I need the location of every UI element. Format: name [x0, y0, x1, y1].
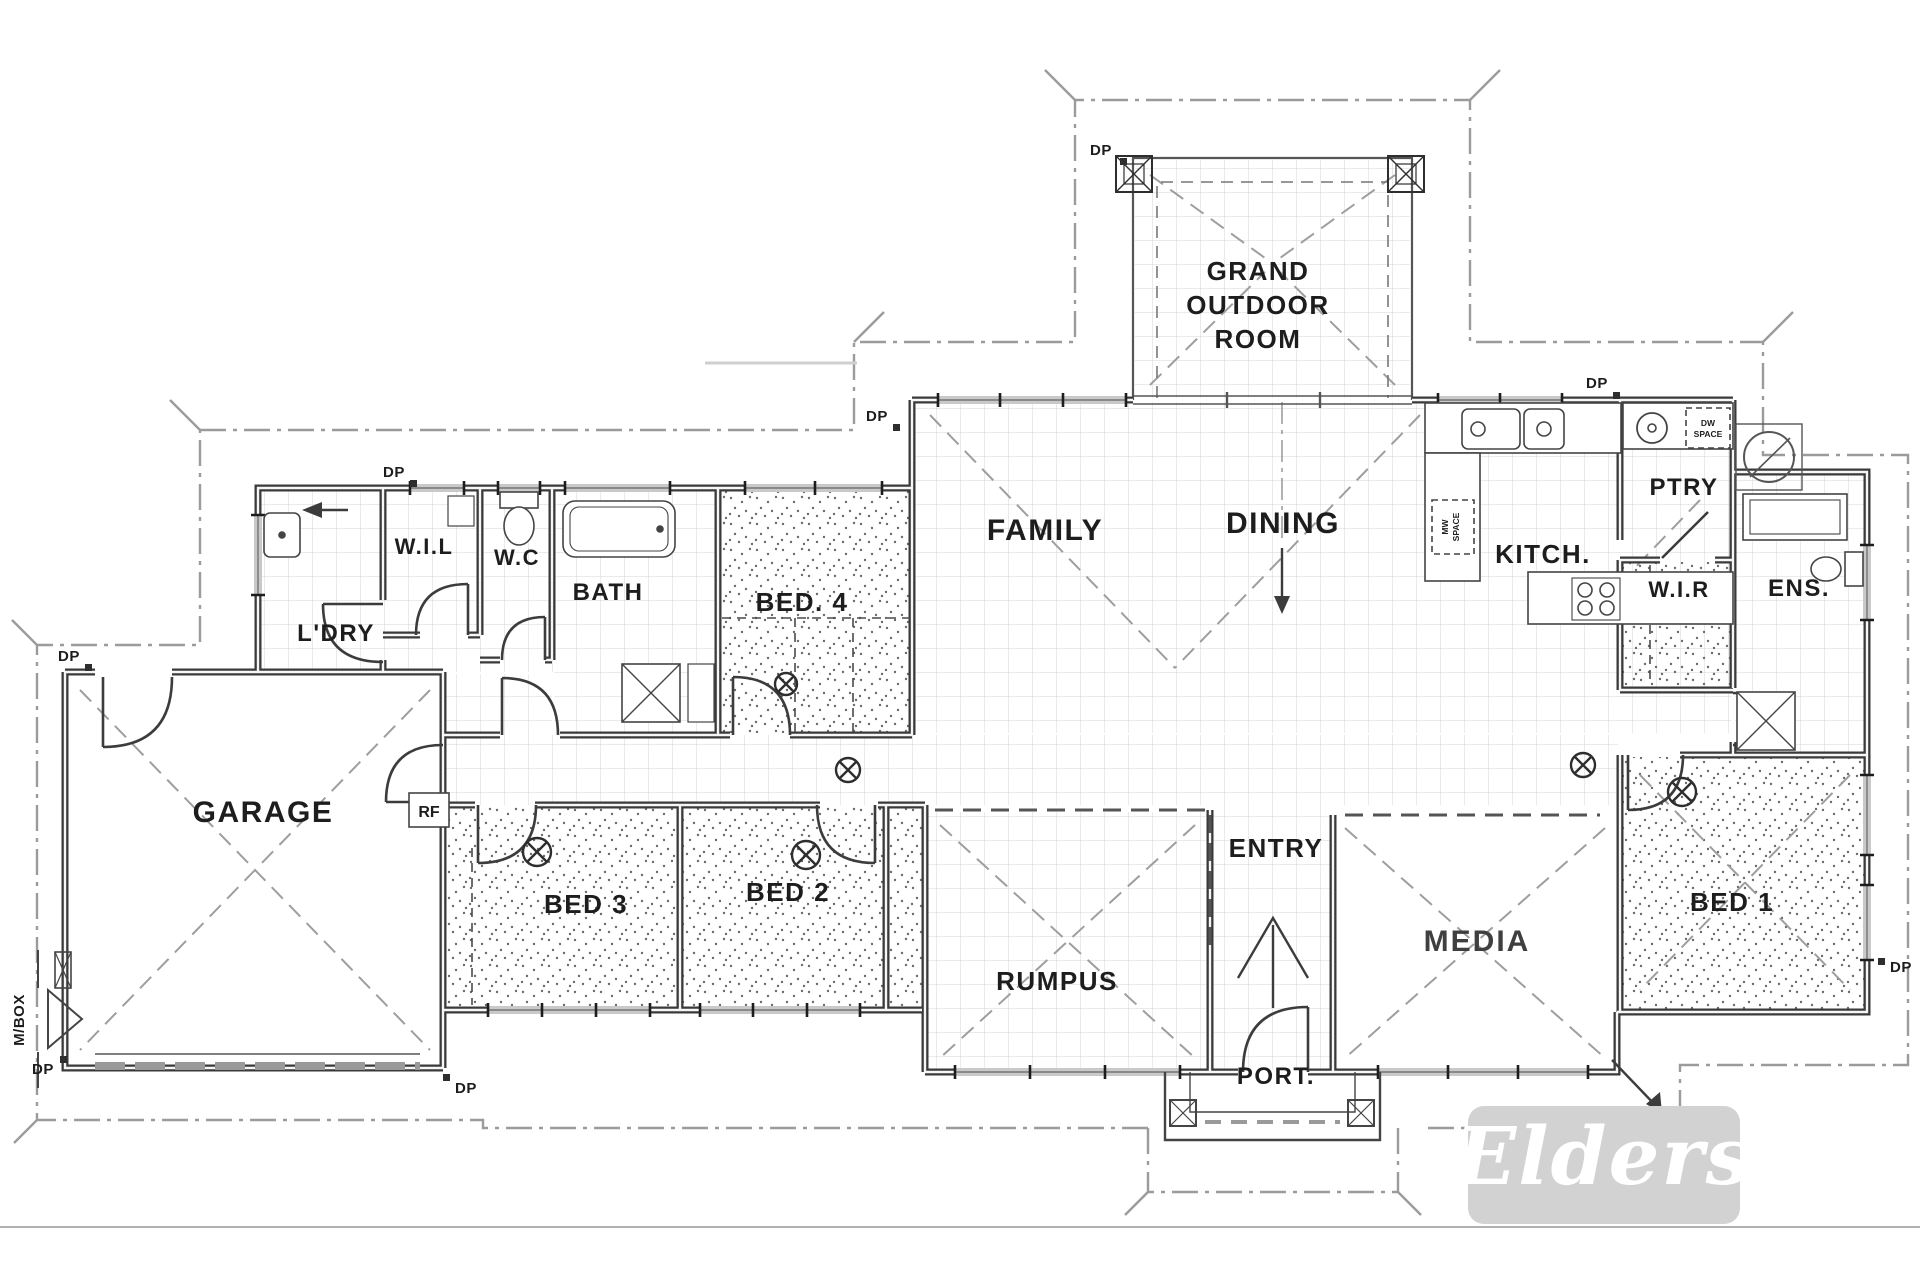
cooktop [1572, 578, 1620, 620]
label-wir: W.I.R [1648, 577, 1709, 602]
floor-plan-page: GRAND OUTDOOR ROOM FAMILY DINING KITCH. … [0, 0, 1920, 1280]
label-pantry: PTRY [1649, 474, 1718, 501]
label-bed2: BED 2 [746, 877, 830, 907]
dp-label: DP [455, 1080, 477, 1097]
label-garage: GARAGE [193, 796, 334, 829]
label-dining: DINING [1226, 507, 1340, 540]
label-kitchen: KITCH. [1495, 539, 1591, 569]
mbox-label-group: M/BOX [11, 994, 28, 1046]
label-grand-outdoor-1: GRAND [1207, 256, 1310, 286]
shower-ensuite [1737, 692, 1795, 750]
mbox-label: M/BOX [11, 994, 28, 1046]
dp-label: DP [1586, 375, 1608, 392]
floor-plan-svg: GRAND OUTDOOR ROOM FAMILY DINING KITCH. … [0, 0, 1920, 1280]
label-rf: RF [418, 804, 440, 821]
laundry-tub [264, 513, 300, 557]
portico-column [1170, 1100, 1196, 1126]
eave-corner-arrow-icon [1612, 1060, 1662, 1113]
dp-label: DP [1890, 959, 1912, 976]
shower [622, 664, 680, 722]
dp-label: DP [32, 1061, 54, 1078]
label-bed4: BED. 4 [756, 587, 849, 617]
label-family: FAMILY [987, 514, 1103, 547]
garage-door [95, 1054, 420, 1066]
dp-label: DP [866, 408, 888, 425]
label-grand-outdoor-2: OUTDOOR [1186, 290, 1329, 320]
label-bath: BATH [573, 579, 644, 606]
linen-cupboard [688, 664, 714, 722]
mw-space-label-2: SPACE [1451, 512, 1461, 541]
portico-column [1348, 1100, 1374, 1126]
label-wil: W.I.L [395, 534, 454, 559]
elders-logo-text: Elders [1453, 1109, 1752, 1203]
label-port: PORT. [1237, 1063, 1315, 1090]
dp-label: DP [58, 648, 80, 665]
label-ens: ENS. [1768, 575, 1830, 602]
elders-logo: Elders [1453, 1106, 1752, 1224]
dp-label: DP [383, 464, 405, 481]
label-laundry: L'DRY [297, 620, 375, 647]
label-wc: W.C [494, 545, 540, 570]
label-rumpus: RUMPUS [996, 966, 1118, 996]
kitchen-sink [1462, 409, 1564, 449]
label-entry: ENTRY [1229, 833, 1324, 863]
pantry-bench [1623, 403, 1733, 449]
dw-space-label-2: SPACE [1694, 429, 1723, 439]
label-grand-outdoor-3: ROOM [1215, 324, 1302, 354]
mw-space-label-1: MW [1440, 518, 1450, 534]
bathtub [563, 501, 675, 557]
label-media: MEDIA [1424, 925, 1531, 958]
wil-shelf [448, 496, 474, 526]
dp-label: DP [1090, 142, 1112, 159]
label-bed3: BED 3 [544, 889, 628, 919]
ensuite-vanity [1743, 494, 1847, 540]
dw-space-label-1: DW [1701, 418, 1716, 428]
label-bed1: BED 1 [1690, 887, 1774, 917]
